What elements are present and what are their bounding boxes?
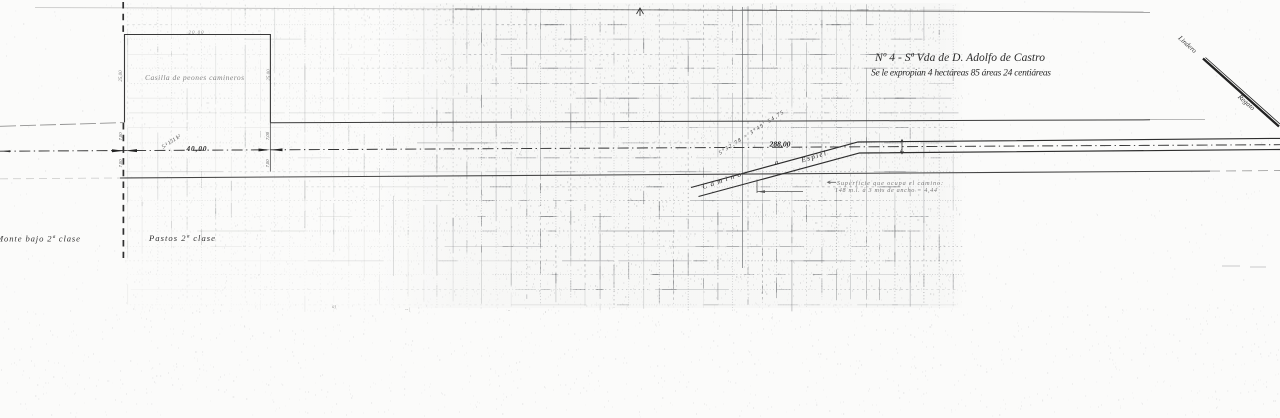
svg-text:20,00: 20,00 [189,31,205,36]
svg-text:Superficie que ocupa el camino: Superficie que ocupa el camino: [837,180,943,187]
svg-text:25,00: 25,00 [267,69,272,81]
svg-text:Monte bajo 2ª clase: Monte bajo 2ª clase [0,234,80,244]
svg-text:Casilla de peones camineros: Casilla de peones camineros [145,73,244,82]
svg-text:..: .. [508,308,511,313]
svg-text:40,00: 40,00 [186,145,207,153]
svg-text:25,00: 25,00 [119,70,124,82]
svg-text:288,00: 288,00 [769,140,791,149]
svg-text:--|: --| [405,308,410,313]
svg-text:a): a) [332,305,337,310]
svg-text:Se le expropian 4 hectáreas 85: Se le expropian 4 hectáreas 85 áreas 24 … [871,69,1051,79]
svg-text:Nº 4 - Sª Vda de D. Adolfo de: Nº 4 - Sª Vda de D. Adolfo de Castro [874,52,1045,64]
svg-text:148 m.l. á 3 mts de ancho = 4,: 148 m.l. á 3 mts de ancho = 4,44 [835,187,937,194]
svg-text:Pastos 2ª clase: Pastos 2ª clase [148,233,215,243]
svg-text:,: , [545,309,546,314]
